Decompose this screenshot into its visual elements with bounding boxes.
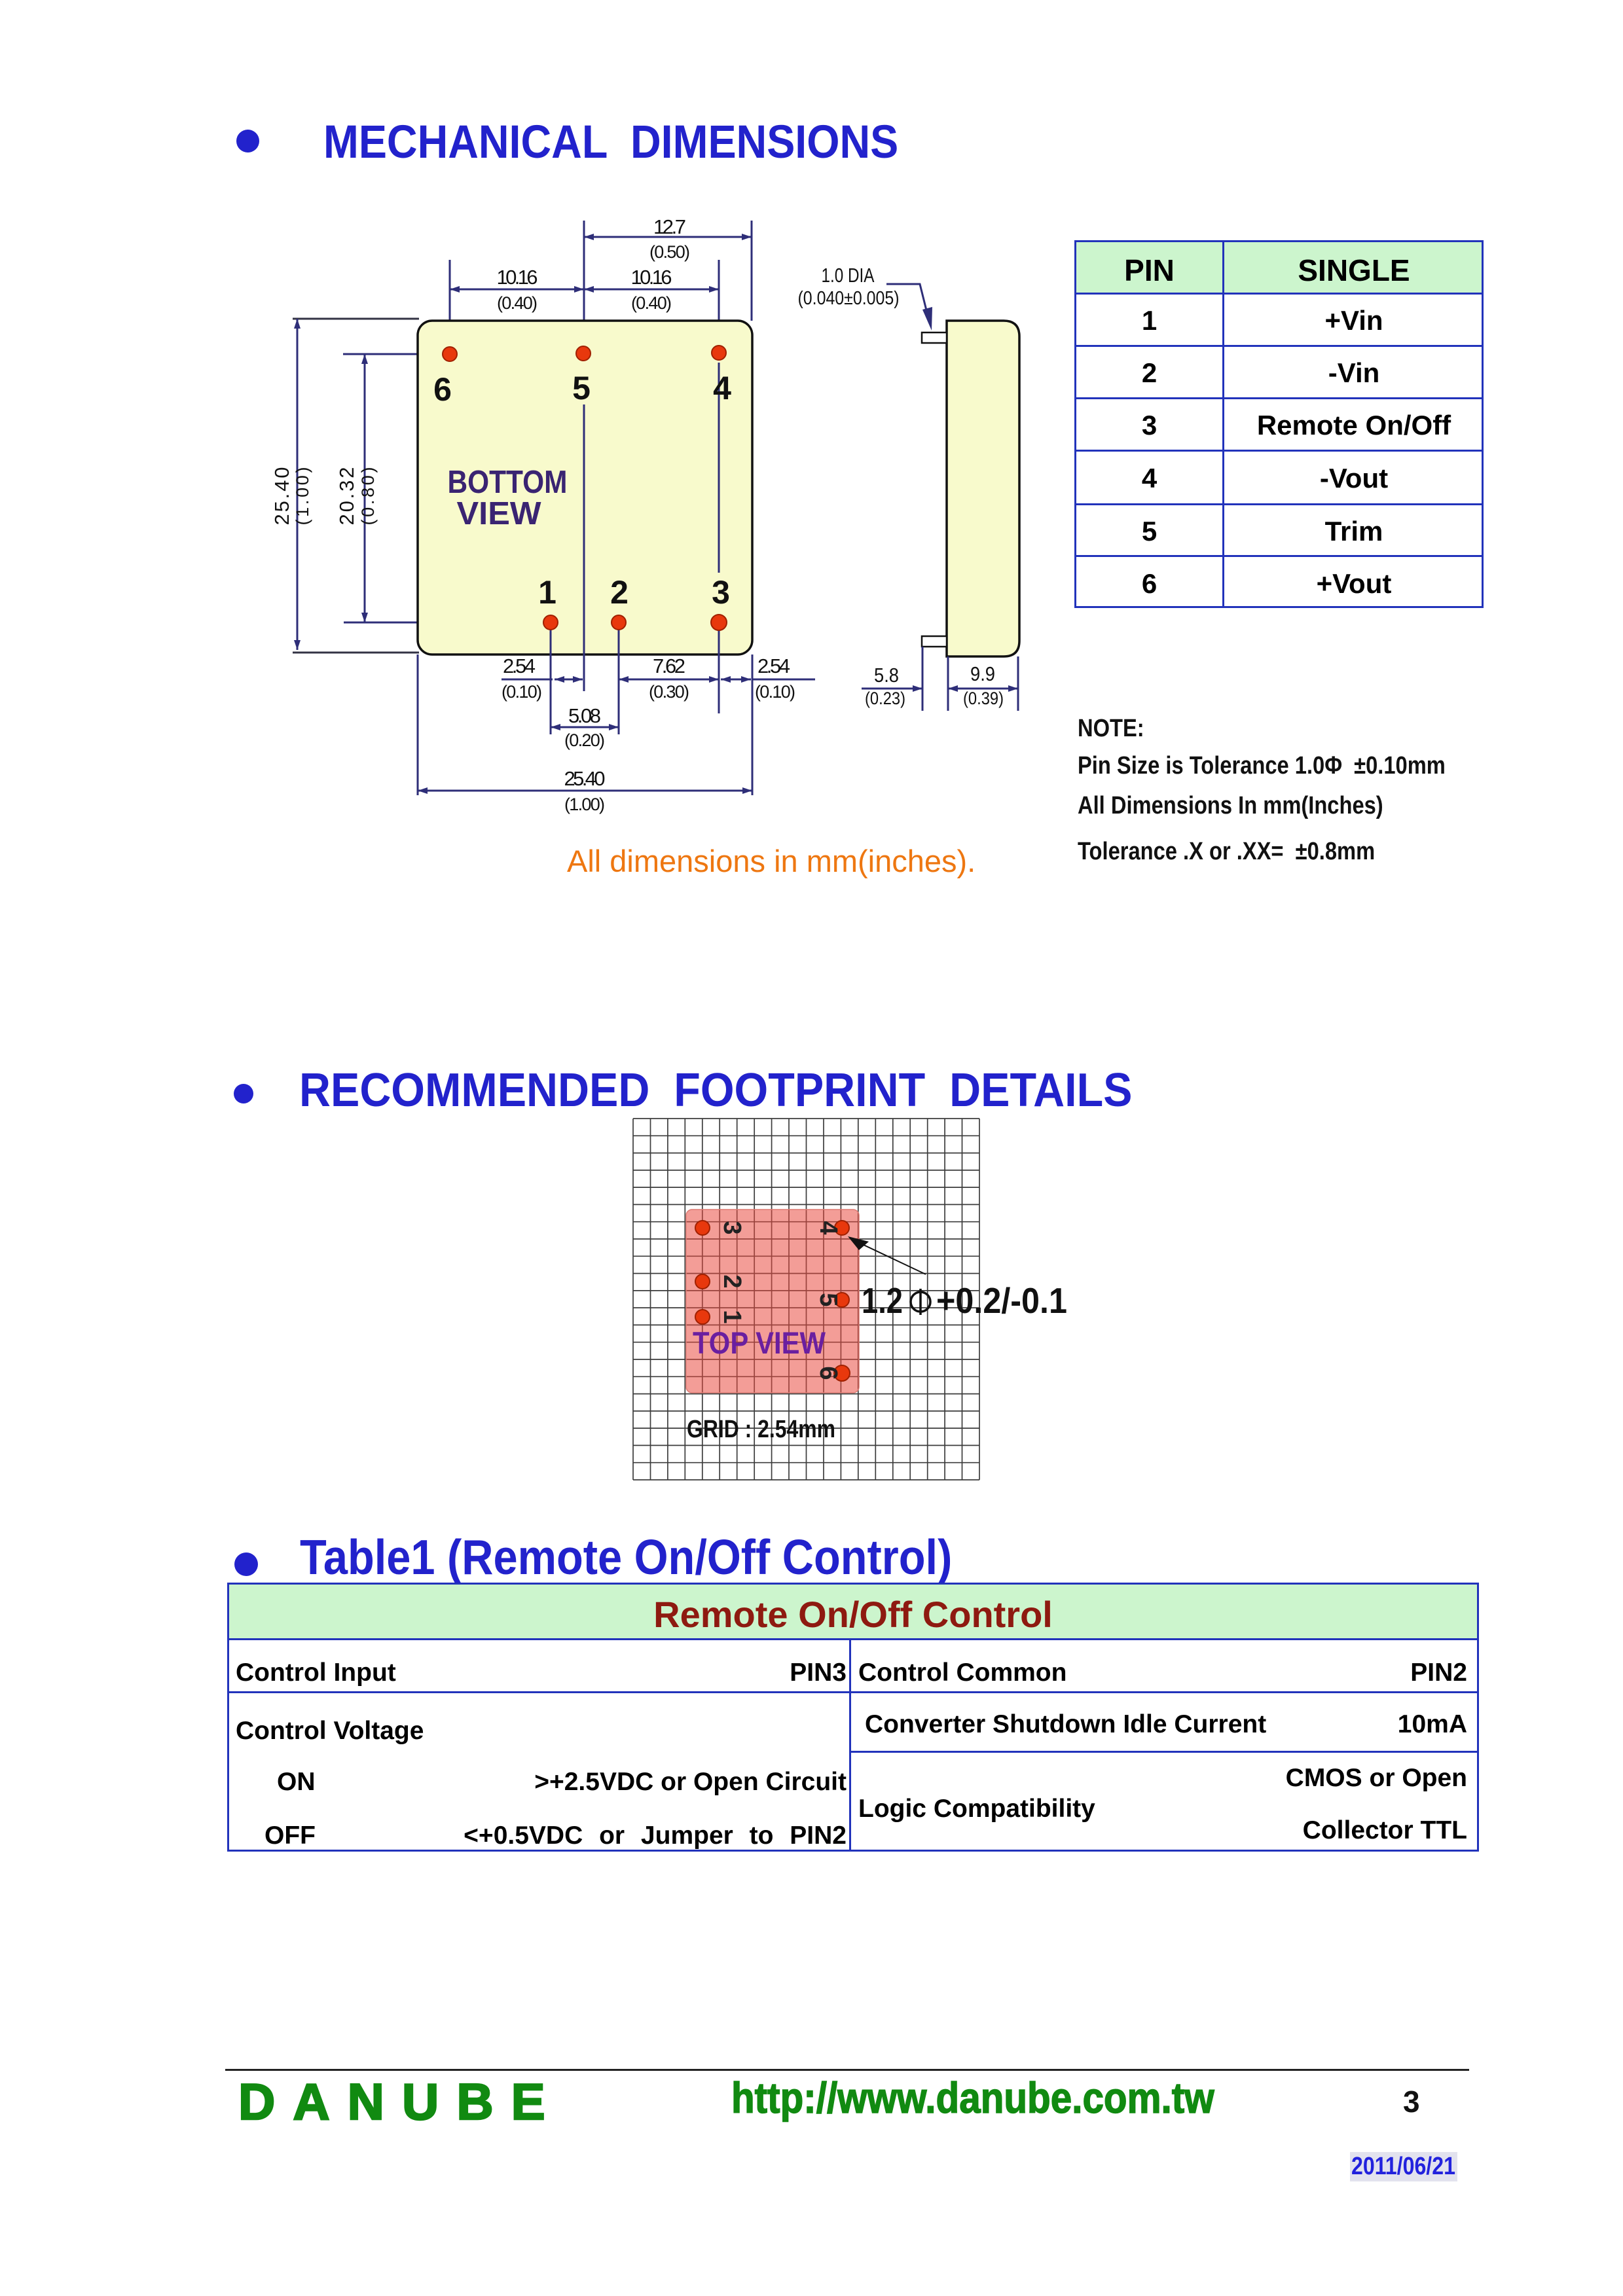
- svg-text:(0.39): (0.39): [963, 689, 1004, 708]
- svg-text:6: 6: [433, 371, 452, 408]
- svg-text:(0.40): (0.40): [631, 293, 672, 313]
- svg-text:9.9: 9.9: [970, 662, 995, 685]
- svg-text:(0.40): (0.40): [497, 293, 538, 313]
- svg-text:GRID : 2.54mm: GRID : 2.54mm: [687, 1416, 835, 1443]
- svg-text:(0.20): (0.20): [564, 730, 605, 750]
- svg-text:BOTTOM: BOTTOM: [448, 465, 568, 500]
- svg-text:5.8: 5.8: [874, 664, 899, 687]
- svg-text:1: 1: [538, 574, 556, 611]
- svg-text:(0.80): (0.80): [358, 467, 378, 526]
- svg-text:10.16: 10.16: [631, 266, 672, 289]
- svg-text:(0.50): (0.50): [649, 242, 690, 262]
- svg-text:1.0 DIA: 1.0 DIA: [822, 264, 875, 287]
- svg-text:(0.30): (0.30): [649, 682, 689, 702]
- svg-text:1: 1: [718, 1310, 746, 1323]
- svg-text:3: 3: [718, 1221, 746, 1234]
- svg-text:5: 5: [814, 1293, 842, 1306]
- svg-text:6: 6: [814, 1366, 842, 1380]
- svg-text:2: 2: [718, 1274, 746, 1288]
- svg-text:1.2: 1.2: [862, 1280, 903, 1321]
- svg-text:4: 4: [814, 1221, 842, 1234]
- svg-text:5.08: 5.08: [568, 704, 601, 727]
- svg-text:3: 3: [712, 574, 730, 611]
- svg-text:2.54: 2.54: [503, 655, 536, 677]
- svg-text:TOP VIEW: TOP VIEW: [693, 1325, 826, 1360]
- svg-text:(1.00): (1.00): [564, 795, 605, 814]
- svg-text:2.54: 2.54: [757, 655, 790, 677]
- svg-text:(0.10): (0.10): [755, 682, 795, 702]
- svg-text:7.62: 7.62: [653, 655, 685, 677]
- svg-text:(0.23): (0.23): [865, 689, 905, 708]
- svg-text:10.16: 10.16: [497, 266, 538, 289]
- svg-text:25.40: 25.40: [270, 467, 293, 526]
- svg-text:(0.10): (0.10): [501, 682, 542, 702]
- svg-text:12.7: 12.7: [653, 215, 686, 238]
- svg-text:(1.00): (1.00): [293, 467, 312, 526]
- svg-text:5: 5: [572, 370, 591, 406]
- svg-text:(0.040±0.005): (0.040±0.005): [798, 288, 900, 309]
- svg-text:2: 2: [610, 574, 629, 611]
- svg-text:VIEW: VIEW: [457, 496, 542, 531]
- svg-text:20.32: 20.32: [335, 467, 358, 526]
- svg-text:+0.2/-0.1: +0.2/-0.1: [936, 1280, 1067, 1321]
- svg-text:25.40: 25.40: [564, 767, 606, 790]
- svg-text:4: 4: [713, 370, 731, 406]
